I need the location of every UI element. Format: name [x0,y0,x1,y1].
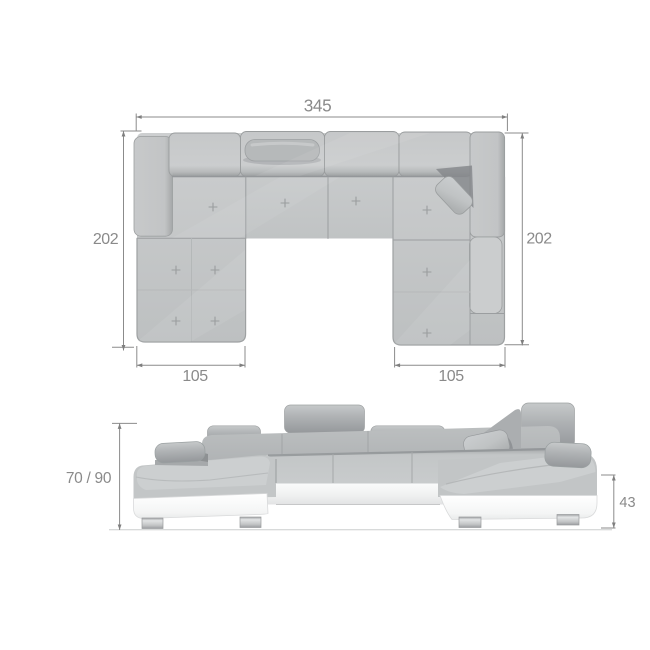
svg-text:43: 43 [619,495,635,511]
svg-text:202: 202 [93,231,119,248]
svg-text:70 / 90: 70 / 90 [66,470,112,487]
svg-text:202: 202 [526,231,552,248]
svg-text:345: 345 [304,96,331,116]
svg-text:105: 105 [438,368,464,385]
svg-text:105: 105 [182,368,208,385]
